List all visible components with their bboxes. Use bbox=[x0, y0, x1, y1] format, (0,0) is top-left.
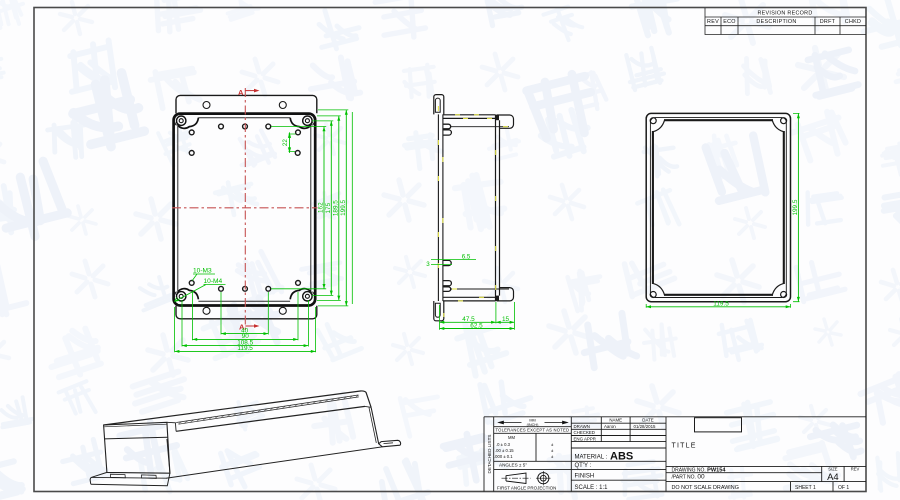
svg-text:TITLE: TITLE bbox=[672, 443, 697, 450]
svg-text:.00 ± 0.15: .00 ± 0.15 bbox=[495, 448, 514, 453]
svg-text:SCALE : 1:1: SCALE : 1:1 bbox=[575, 485, 609, 491]
svg-text:Aaron: Aaron bbox=[604, 424, 616, 429]
svg-text:MM: MM bbox=[529, 419, 535, 423]
svg-text:REVISION RECORD: REVISION RECORD bbox=[757, 11, 812, 17]
svg-text:OF 1: OF 1 bbox=[838, 485, 849, 491]
svg-text:6.5: 6.5 bbox=[462, 253, 471, 260]
svg-text:ENG APPR: ENG APPR bbox=[574, 436, 596, 441]
svg-text:ANGLES ± 5°: ANGLES ± 5° bbox=[499, 462, 527, 467]
svg-text:DRAWING NO. PW154: DRAWING NO. PW154 bbox=[672, 467, 727, 473]
svg-text:MM: MM bbox=[508, 435, 515, 440]
svg-text:DRAWN: DRAWN bbox=[574, 424, 590, 429]
svg-text:.0 ± 0.3: .0 ± 0.3 bbox=[496, 442, 511, 447]
svg-text:(INCH): (INCH) bbox=[527, 423, 540, 427]
svg-text:NAME: NAME bbox=[609, 417, 622, 422]
svg-text:162: 162 bbox=[318, 202, 325, 213]
svg-text:SIZE: SIZE bbox=[828, 467, 838, 472]
svg-text:199.5: 199.5 bbox=[340, 199, 347, 215]
svg-text:REV: REV bbox=[851, 467, 860, 472]
svg-text:62.5: 62.5 bbox=[470, 322, 483, 329]
svg-text:DO NOT SCALE DRAWING: DO NOT SCALE DRAWING bbox=[672, 485, 739, 491]
svg-text:MATERIAL :: MATERIAL : bbox=[575, 455, 608, 461]
svg-text:DETACHED LISTS: DETACHED LISTS bbox=[487, 435, 492, 474]
svg-text:SHEET 1: SHEET 1 bbox=[795, 485, 816, 491]
svg-text:QT'Y :: QT'Y : bbox=[575, 463, 592, 469]
svg-text:CHECKED: CHECKED bbox=[574, 430, 595, 435]
svg-text:15: 15 bbox=[502, 316, 510, 323]
svg-text:±: ± bbox=[551, 442, 554, 447]
svg-text:119.5: 119.5 bbox=[237, 345, 253, 352]
svg-text:ABS: ABS bbox=[610, 451, 633, 463]
svg-text:3: 3 bbox=[426, 261, 430, 268]
svg-text:DRFT: DRFT bbox=[820, 19, 836, 25]
svg-text:FIRST ANGLE PROJECTION: FIRST ANGLE PROJECTION bbox=[497, 485, 556, 490]
svg-text:A: A bbox=[238, 88, 244, 97]
svg-text:189.5: 189.5 bbox=[332, 200, 339, 216]
svg-text:/PART NO. 00: /PART NO. 00 bbox=[672, 474, 705, 481]
svg-text:DATE: DATE bbox=[642, 417, 653, 422]
svg-text:01/28/2015: 01/28/2015 bbox=[634, 424, 657, 429]
svg-text:175: 175 bbox=[325, 202, 332, 213]
svg-text:FINISH: FINISH bbox=[575, 474, 595, 480]
svg-text:A4: A4 bbox=[827, 472, 839, 483]
svg-text:199.5: 199.5 bbox=[792, 199, 799, 215]
svg-text:DESCRIPTION: DESCRIPTION bbox=[756, 19, 796, 25]
svg-text:22: 22 bbox=[282, 139, 289, 147]
svg-text:REV: REV bbox=[707, 19, 719, 25]
svg-text:10-M4: 10-M4 bbox=[204, 278, 223, 285]
svg-text:ECO: ECO bbox=[723, 19, 736, 25]
svg-text:119.5: 119.5 bbox=[713, 301, 729, 308]
svg-text:TOLERANCES EXCEPT AS NOTED: TOLERANCES EXCEPT AS NOTED bbox=[496, 428, 570, 433]
svg-text:±: ± bbox=[551, 448, 554, 453]
svg-text:.000 ± 0.1: .000 ± 0.1 bbox=[494, 454, 513, 459]
svg-text:10-M3: 10-M3 bbox=[193, 268, 212, 275]
svg-text:CHKD: CHKD bbox=[845, 19, 861, 25]
